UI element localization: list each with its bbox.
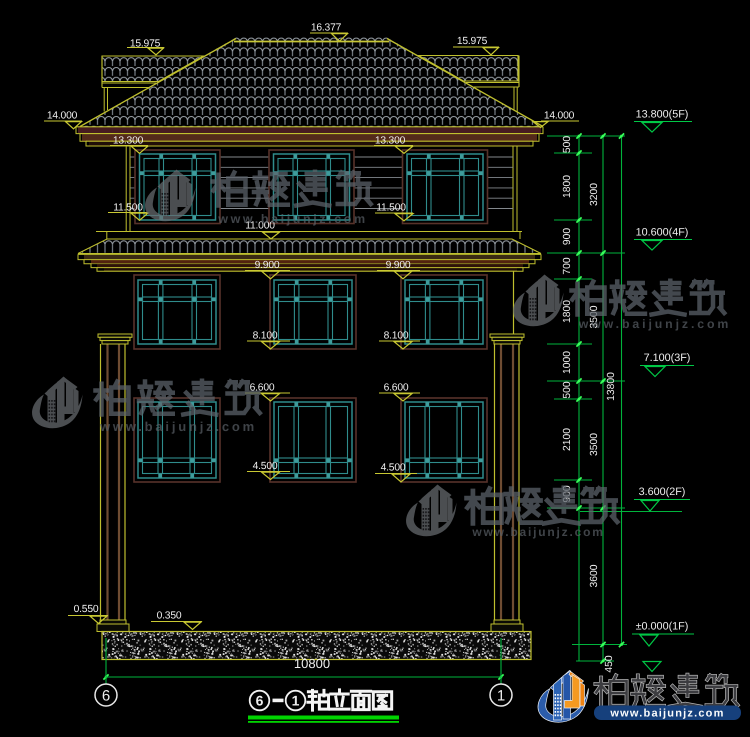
svg-text:3600: 3600 [589, 564, 600, 587]
svg-text:16.377: 16.377 [311, 23, 342, 34]
svg-text:www.baijunjz.com: www.baijunjz.com [609, 708, 724, 720]
svg-text:9.900: 9.900 [386, 260, 411, 271]
svg-text:500: 500 [562, 381, 573, 398]
svg-text:4.500: 4.500 [253, 461, 278, 472]
svg-text:3.600(2F): 3.600(2F) [639, 486, 686, 498]
svg-text:1: 1 [292, 693, 300, 709]
svg-text:11.500: 11.500 [376, 203, 406, 214]
svg-text:13.300: 13.300 [375, 136, 406, 147]
svg-text:8.100: 8.100 [253, 331, 278, 342]
svg-text:14.000: 14.000 [544, 111, 575, 122]
svg-text:14.000: 14.000 [47, 111, 78, 122]
svg-text:www.baijunjz.com: www.baijunjz.com [471, 525, 604, 539]
svg-text:6: 6 [256, 693, 264, 709]
svg-text:500: 500 [562, 136, 573, 153]
svg-text:3500: 3500 [589, 433, 600, 456]
svg-text:7.100(3F): 7.100(3F) [644, 352, 691, 364]
svg-text:4.500: 4.500 [381, 463, 406, 474]
svg-text:11.500: 11.500 [113, 203, 143, 214]
svg-text:13.800(5F): 13.800(5F) [636, 109, 689, 121]
svg-text:13.300: 13.300 [113, 136, 144, 147]
svg-text:www.baijunjz.com: www.baijunjz.com [217, 212, 367, 226]
svg-text:www.baijunjz.com: www.baijunjz.com [578, 317, 732, 331]
svg-text:15.975: 15.975 [457, 36, 488, 47]
svg-text:6: 6 [102, 688, 110, 705]
svg-text:1800: 1800 [562, 300, 573, 323]
svg-text:0.550: 0.550 [74, 604, 99, 615]
svg-text:2100: 2100 [562, 428, 573, 451]
svg-text:www.baijunjz.com: www.baijunjz.com [99, 419, 257, 434]
svg-text:1000: 1000 [562, 351, 573, 374]
svg-text:1800: 1800 [562, 175, 573, 198]
svg-text:700: 700 [562, 257, 573, 274]
svg-text:±0.000(1F): ±0.000(1F) [636, 621, 689, 633]
svg-text:10.600(4F): 10.600(4F) [636, 227, 689, 239]
svg-text:10800: 10800 [294, 656, 330, 671]
svg-text:6.600: 6.600 [384, 383, 409, 394]
svg-text:3200: 3200 [589, 183, 600, 206]
svg-text:8.100: 8.100 [384, 331, 409, 342]
svg-text:13800: 13800 [606, 372, 617, 401]
svg-text:0.350: 0.350 [157, 611, 182, 622]
svg-text:900: 900 [562, 228, 573, 245]
svg-text:9.900: 9.900 [255, 260, 280, 271]
svg-text:1: 1 [497, 688, 505, 705]
svg-text:450: 450 [604, 655, 615, 672]
